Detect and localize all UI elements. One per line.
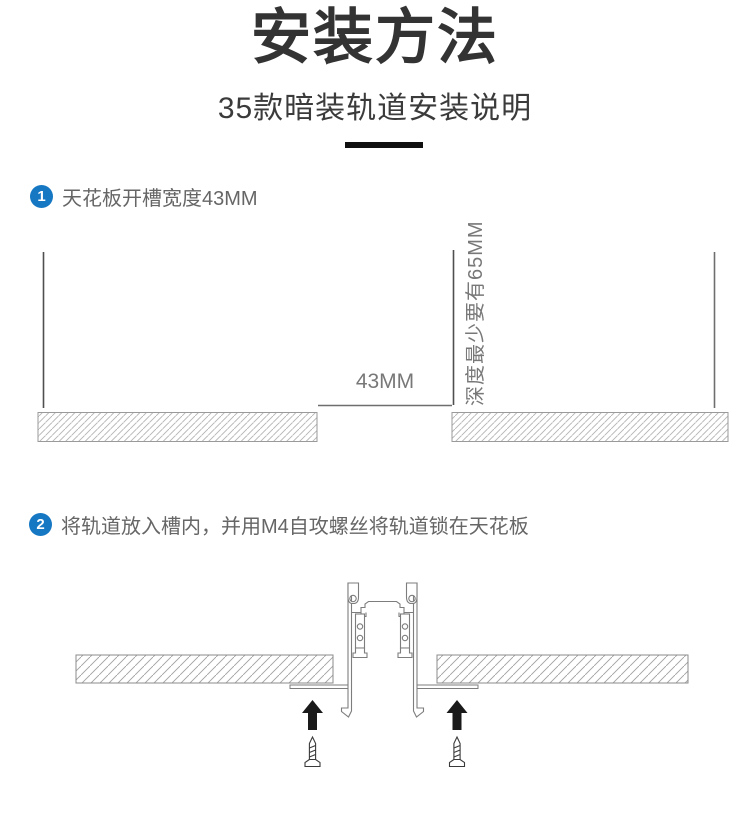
up-arrow-icon	[302, 700, 323, 730]
ceiling-panel-left	[38, 413, 317, 442]
track-flange-right	[414, 685, 478, 689]
installation-instructions-page: 安装方法 35款暗装轨道安装说明 1 天花板开槽宽度43MM 2 将轨道放入槽内…	[0, 0, 750, 823]
track-installation-diagram	[76, 583, 688, 767]
ceiling-panel-left	[76, 655, 333, 683]
track-profile	[342, 583, 424, 717]
slot-dimension-diagram	[38, 250, 728, 442]
screw-icon	[450, 737, 465, 767]
screw-icon	[305, 737, 320, 767]
up-arrow-icon	[447, 700, 468, 730]
diagram-graphics	[0, 0, 750, 823]
ceiling-panel-right	[452, 413, 728, 442]
ceiling-panel-right	[437, 655, 688, 683]
slot-width-label: 43MM	[318, 370, 452, 394]
slot-depth-label: 深度最少要有65MM	[459, 220, 488, 406]
track-flange-left	[290, 685, 351, 689]
